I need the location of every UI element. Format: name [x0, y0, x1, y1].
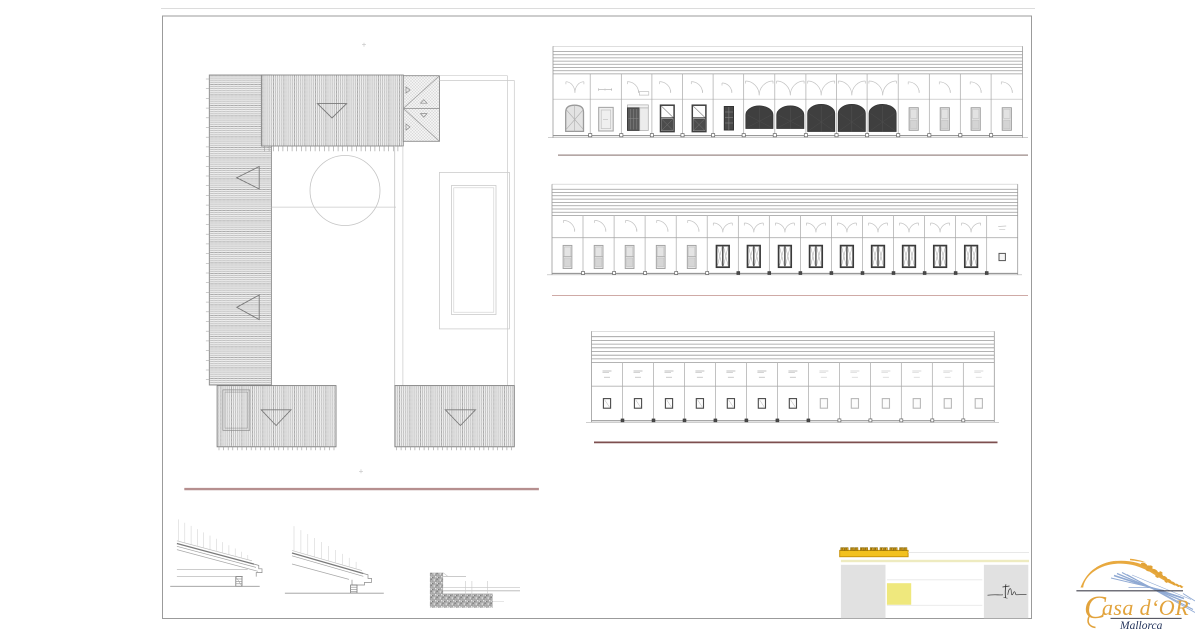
svg-text:asa d‘OR: asa d‘OR	[1102, 595, 1189, 620]
svg-text:Mallorca: Mallorca	[1119, 620, 1163, 632]
